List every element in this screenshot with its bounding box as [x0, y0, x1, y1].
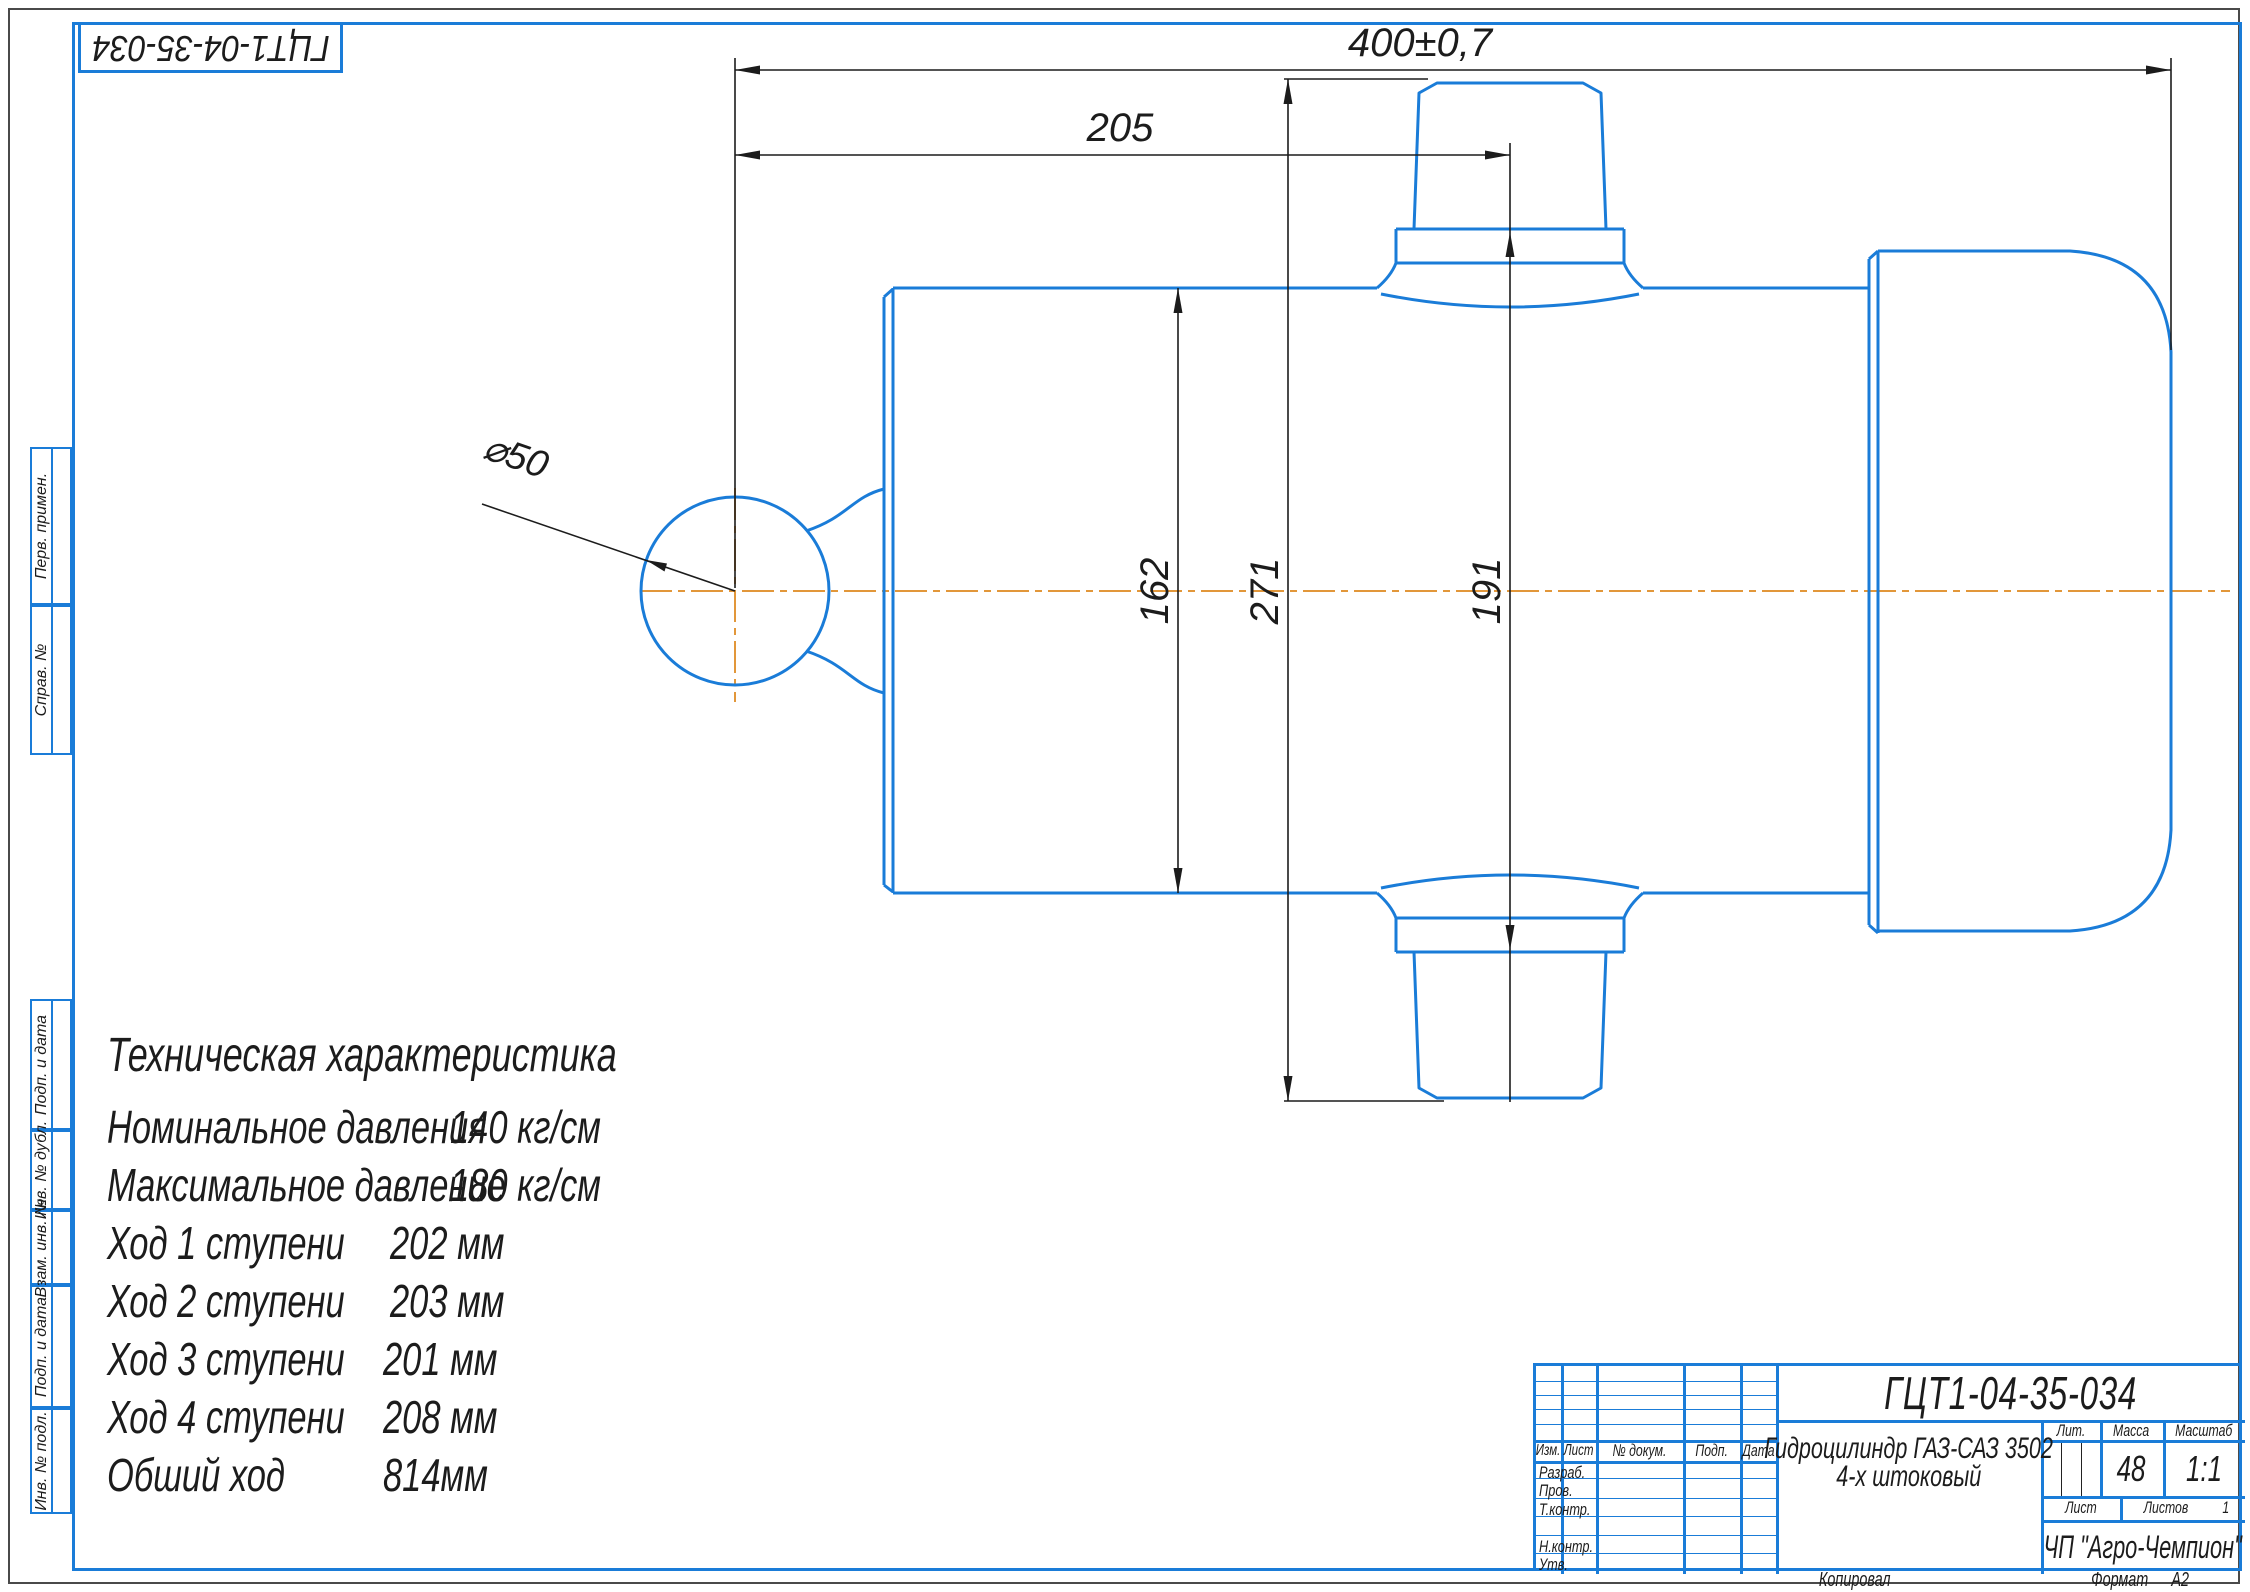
- tb-col-list: Лист: [1561, 1441, 1596, 1461]
- tb-lit-label: Лит.: [2041, 1421, 2100, 1440]
- tech-spec-row: Ход 3 ступени: [107, 1332, 424, 1386]
- tb-col-podp: Подп.: [1683, 1441, 1740, 1461]
- tech-spec-row: Обший ход: [107, 1448, 344, 1502]
- arrow-191-top: [1506, 232, 1515, 257]
- tech-spec-value: 814мм: [383, 1448, 523, 1502]
- tb-sheet-label: Лист: [2041, 1497, 2120, 1518]
- tech-spec-row: Ход 4 ступени: [107, 1390, 424, 1444]
- arrow-162-top: [1174, 288, 1183, 313]
- dimension-texts: 400±0,7 205 162 271 191 ⌀50: [478, 21, 1509, 625]
- tb-row-tkontr: Т.контр.: [1539, 1500, 1608, 1520]
- tb-line: [1536, 1409, 1776, 1410]
- tb-line: [1536, 1424, 1776, 1425]
- tb-mass-label: Масса: [2100, 1421, 2163, 1440]
- tb-row-razrab: Разраб.: [1539, 1463, 1601, 1483]
- tb-line: [2120, 1496, 2123, 1520]
- tech-spec-value: 208 мм: [383, 1390, 536, 1444]
- title-block: Изм. Лист № докум. Подп. Дата Разраб. Пр…: [1533, 1363, 2242, 1571]
- arrow-400-right: [2146, 66, 2171, 75]
- tech-spec-value: 140 кг/см: [450, 1100, 651, 1154]
- tech-spec-row: Ход 1 ступени: [107, 1216, 424, 1270]
- tb-line: [1536, 1535, 1776, 1536]
- tech-spec-value: 202 мм: [390, 1216, 543, 1270]
- dim-text-400: 400±0,7: [1348, 21, 1494, 65]
- tech-specs-title: Техническая характеристика: [107, 1028, 787, 1083]
- tech-spec-value: 201 мм: [383, 1332, 536, 1386]
- tb-company: ЧП "Агро-Чемпион": [2041, 1520, 2245, 1574]
- tb-scale-label: Масштаб: [2163, 1421, 2245, 1440]
- arrow-271-top: [1284, 79, 1293, 104]
- tb-lit-divider: [2061, 1440, 2062, 1496]
- tech-spec-row: Ход 2 ступени: [107, 1274, 424, 1328]
- tb-scale-value: 1:1: [2163, 1446, 2245, 1491]
- dimension-lines: [482, 58, 2171, 1102]
- tb-name-line2: 4-х штоковый: [1776, 1462, 2041, 1492]
- tb-col-docnum: № докум.: [1596, 1441, 1683, 1461]
- ball-neck-lower: [806, 651, 884, 693]
- tb-row-prov: Пров.: [1539, 1481, 1584, 1501]
- tb-col-izm: Изм.: [1536, 1441, 1561, 1461]
- arrow-191-bottom: [1506, 925, 1515, 950]
- dim-text-d50: ⌀50: [478, 426, 553, 487]
- dim-text-191: 191: [1465, 558, 1509, 625]
- leader-line-d50: [482, 504, 735, 591]
- dim-text-271: 271: [1243, 558, 1287, 626]
- tb-line: [1740, 1366, 1743, 1574]
- format-value: А2: [2160, 1571, 2200, 1589]
- tb-row-utv: Утв.: [1539, 1555, 1578, 1575]
- ball-neck-upper: [806, 489, 884, 531]
- dim-text-162: 162: [1133, 558, 1177, 625]
- tb-lit-divider: [2081, 1440, 2082, 1496]
- arrow-205-left: [735, 151, 760, 160]
- arrow-d50: [646, 560, 667, 572]
- tb-line: [1536, 1381, 1776, 1382]
- copied-label: Копировал: [1755, 1571, 1955, 1589]
- tb-mass-value: 48: [2100, 1446, 2163, 1491]
- arrow-400-left: [735, 66, 760, 75]
- centerlines: [640, 488, 2230, 702]
- tech-spec-value: 203 мм: [390, 1274, 543, 1328]
- dimension-arrows: [646, 66, 2171, 1102]
- tech-spec-value: 180 кг/см: [450, 1158, 651, 1212]
- drawing-sheet: ГЦТ1-04-35-034 Перв. примен. Справ. № По…: [0, 0, 2250, 1592]
- arrow-162-bottom: [1174, 868, 1183, 893]
- tb-line: [1536, 1395, 1776, 1396]
- tb-line: [1683, 1366, 1686, 1574]
- arrow-271-bottom: [1284, 1076, 1293, 1101]
- tb-doc-number: ГЦТ1-04-35-034: [1776, 1366, 2245, 1420]
- dim-text-205: 205: [1086, 106, 1154, 150]
- tb-sheets-label: Листов: [2126, 1497, 2206, 1518]
- tb-row-nkontr: Н.контр.: [1539, 1537, 1611, 1557]
- tb-sheets-value: 1: [2211, 1497, 2241, 1518]
- arrow-205-right: [1485, 151, 1510, 160]
